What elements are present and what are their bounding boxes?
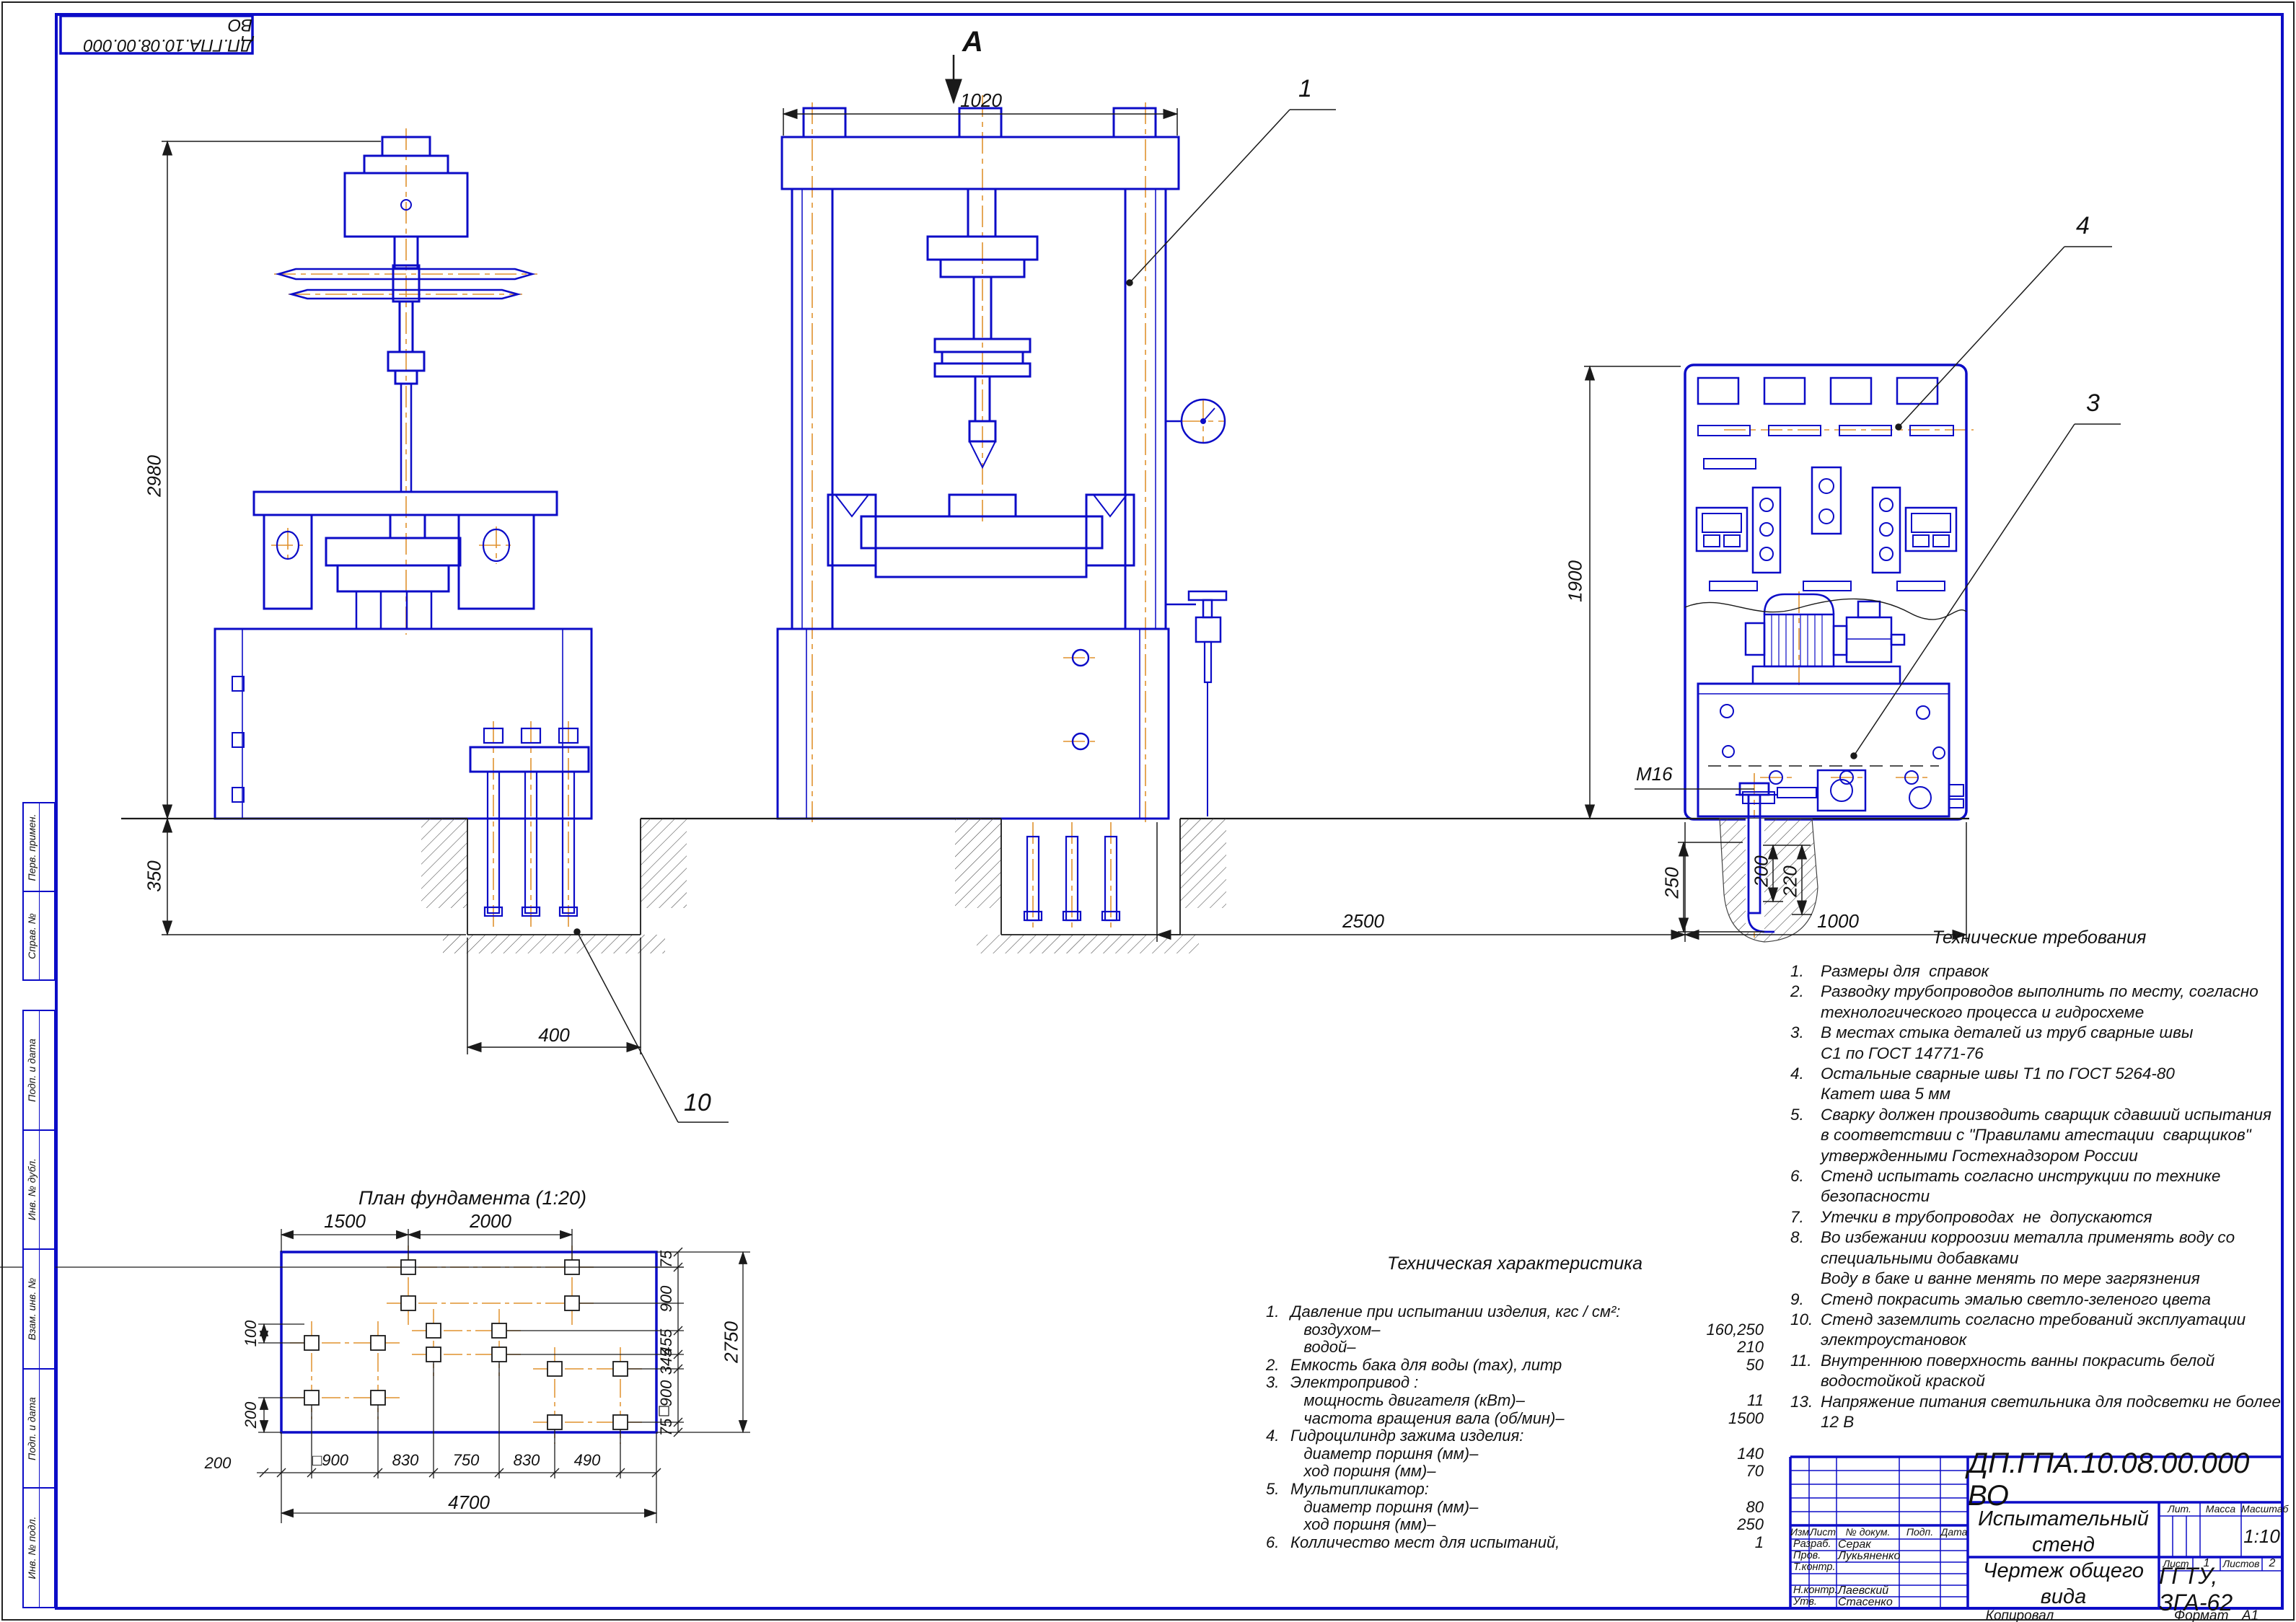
req-line-number: 2. [1790,982,1821,1002]
char-row-label: диаметр поршня (мм)– [1290,1445,1684,1463]
plan-dim-1500: 1500 [324,1210,366,1233]
char-row-value: 50 [1684,1357,1764,1375]
req-line-number: 8. [1790,1227,1821,1248]
tech-requirement-line: 13. Напряжение питания светильника для п… [1790,1392,2288,1412]
plan-dim-r900b: 900 [657,1380,676,1407]
char-row-value: 140 [1684,1445,1764,1463]
tech-requirement-line: водостойкой краской [1790,1371,2288,1391]
req-line-text: С1 по ГОСТ 14771-76 [1821,1044,2288,1064]
tech-requirement-line: 5. Сварку должен производить сварщик сда… [1790,1105,2288,1125]
margin-cell: Инв. № подл. [22,1487,56,1608]
tech-characteristic-row: 4. Гидроцилиндр зажима изделия: [1266,1427,1764,1445]
char-row-number [1266,1463,1290,1481]
req-line-text: Сварку должен производить сварщик сдавши… [1821,1105,2288,1125]
req-line-text: Размеры для справок [1821,961,2288,982]
plan-dim-b200: 200 [205,1454,232,1473]
req-line-number: 13. [1790,1392,1821,1412]
tech-requirement-line: технологического процесса и гидросхеме [1790,1002,2288,1023]
title-block-row: Пров. Лукьяненко [1790,1551,1968,1562]
row-role: Разраб. [1790,1539,1838,1551]
char-row-number [1266,1321,1290,1339]
plan-dim-l200: 200 [242,1402,260,1429]
req-line-number: 11. [1790,1351,1821,1371]
row-name: Стасенко [1838,1597,1893,1608]
drawing-name-line2: Чертеж общего вида [1968,1558,2159,1610]
tech-requirement-line: 6. Стенд испытать согласно инструкции по… [1790,1166,2288,1186]
req-line-text: Катет шва 5 мм [1821,1084,2288,1104]
tech-characteristics-title: Техническая характеристика [1266,1253,1764,1274]
dim-anchor-thread: M16 [1636,763,1673,785]
char-row-label: Электропривод : [1290,1374,1684,1392]
char-row-label: Мультипликатор: [1290,1481,1684,1499]
footer-format-label: Формат [2174,1608,2228,1622]
margin-cell-divider [39,1011,40,1129]
tech-requirement-line: 3. В местах стыка деталей из труб сварны… [1790,1023,2288,1043]
title-block-doc-number: ДП.ГПА.10.08.00.000 ВО [1968,1457,2282,1502]
tech-requirement-line: Воду в баке и ванне менять по мере загря… [1790,1269,2288,1289]
tech-characteristic-row: 1. Давление при испытании изделия, кгс /… [1266,1303,1764,1321]
plan-dim-l100: 100 [242,1321,260,1347]
margin-cell: Подп. и дата [22,1368,56,1489]
char-row-label: Гидроцилиндр зажима изделия: [1290,1427,1684,1445]
req-line-number [1790,1248,1821,1269]
req-line-number [1790,1002,1821,1023]
margin-cell-divider [39,803,40,891]
req-line-text: Внутреннюю поверхность ванны покрасить б… [1821,1351,2288,1371]
char-row-number [1266,1445,1290,1463]
char-row-number: 5. [1266,1481,1290,1499]
col-sign: Подп. [1899,1525,1940,1539]
tech-characteristic-row: водой– 210 [1266,1339,1764,1357]
col-list: Лист [1809,1525,1837,1539]
req-line-text: Утечки в трубопроводах не допускаются [1821,1207,2288,1227]
drawing-name-line1: Испытательный стенд [1968,1506,2159,1558]
tech-characteristic-row: воздухом– 160,250 [1266,1321,1764,1339]
scale-label: Масштаб [2241,1502,2282,1516]
req-line-number: 6. [1790,1166,1821,1186]
margin-cell: Подп. и дата [22,1010,56,1131]
tech-requirement-line: 4. Остальные сварные швы Т1 по ГОСТ 5264… [1790,1064,2288,1084]
tech-characteristic-row: частота вращения вала (об/мин)– 1500 [1266,1410,1764,1428]
title-block-drawing-name: Испытательный стенд Чертеж общего вида [1968,1506,2159,1610]
foundation-plan-title: План фундамента (1:20) [359,1187,586,1209]
req-line-number [1790,1371,1821,1391]
margin-cell: Взам. инв. № [22,1248,56,1370]
char-row-label: Колличество мест для испытаний, [1290,1534,1684,1552]
margin-cell: Инв. № дубл. [22,1129,56,1251]
margin-cell-label: Перв. примен. [26,814,38,881]
dim-pit-width: 400 [538,1024,569,1046]
tech-characteristic-row: мощность двигателя (кВт)– 11 [1266,1392,1764,1410]
margin-cell-divider [39,1489,40,1607]
char-row-value [1684,1303,1764,1321]
plan-centerlines [290,1246,642,1444]
tech-characteristic-row: 3. Электропривод : [1266,1374,1764,1392]
callout-foundation-pit: 10 [684,1089,711,1117]
char-row-label: Емкость бака для воды (max), литр [1290,1357,1684,1375]
margin-column-group1: Перв. примен. Справ. № [22,802,56,981]
char-row-value: 250 [1684,1516,1764,1534]
tech-characteristics: Техническая характеристика 1. Давление п… [1266,1253,1764,1551]
col-date: Дата [1940,1525,1968,1539]
tech-requirement-line: 12 В [1790,1412,2288,1432]
tech-requirement-line: 11. Внутреннюю поверхность ванны покраси… [1790,1351,2288,1371]
tech-requirement-line: утвержденными Гостехнадзором России [1790,1146,2288,1166]
plan-dim-bottom-total: 4700 [448,1491,490,1514]
row-role: Пров. [1790,1551,1838,1562]
dim-press-to-unit: 2500 [1342,910,1384,933]
char-row-label: диаметр поршня (мм)– [1290,1499,1684,1517]
req-line-number [1790,1146,1821,1166]
row-name: Лаевский [1838,1585,1888,1597]
title-block-row [1790,1574,1968,1585]
req-line-text: Остальные сварные швы Т1 по ГОСТ 5264-80 [1821,1064,2288,1084]
tech-characteristic-row: диаметр поршня (мм)– 140 [1266,1445,1764,1463]
char-row-label: Давление при испытании изделия, кгс / см… [1290,1303,1684,1321]
dim-panel-height: 1900 [1565,560,1587,602]
req-line-number [1790,1125,1821,1145]
margin-cell-label: Инв. № подл. [26,1517,38,1579]
char-row-value: 1 [1684,1534,1764,1552]
tech-characteristic-row: ход поршня (мм)– 70 [1266,1463,1764,1481]
char-row-value [1684,1374,1764,1392]
char-row-value: 80 [1684,1499,1764,1517]
req-line-number: 4. [1790,1064,1821,1084]
callout-pump-unit: 3 [2086,389,2100,418]
char-row-number: 1. [1266,1303,1290,1321]
plan-dim-b830b: 830 [514,1451,540,1470]
tech-requirement-line: 8. Во избежании корроозии металла примен… [1790,1227,2288,1248]
dim-foundation-depth: 350 [144,860,166,891]
plan-dim-r345: 345 [657,1349,676,1375]
dim-anchor-len: 220 [1780,865,1802,896]
title-block-organization: ГГТУ, ЗГА-62 [2159,1571,2282,1608]
drawing-sheet: ДП.ГПА.10.08.00.000 ВО Перв. примен. Спр… [0,0,2296,1622]
section-label-a: А [962,26,983,58]
centerlines [271,95,1974,1267]
req-line-text: безопасности [1821,1186,2288,1207]
char-row-number: 3. [1266,1374,1290,1392]
margin-cell-label: Подп. и дата [26,1039,38,1102]
tech-requirement-line: 1. Размеры для справок [1790,961,2288,982]
req-line-number: 3. [1790,1023,1821,1043]
char-row-label: водой– [1290,1339,1684,1357]
ground-and-sections [121,599,1969,953]
tech-characteristic-row: диаметр поршня (мм)– 80 [1266,1499,1764,1517]
margin-cell-label: Подп. и дата [26,1397,38,1460]
tech-requirement-line: Катет шва 5 мм [1790,1084,2288,1104]
tech-requirement-line: специальными добавками [1790,1248,2288,1269]
char-row-number [1266,1392,1290,1410]
req-line-number: 7. [1790,1207,1821,1227]
plan-dim-r75b: 75 [657,1419,676,1436]
tech-characteristic-row: ход поршня (мм)– 250 [1266,1516,1764,1534]
row-role: Т.контр. [1790,1562,1838,1574]
margin-cell: Перв. примен. [22,802,56,892]
char-row-value [1684,1427,1764,1445]
tech-requirement-line: электроустановок [1790,1330,2288,1350]
row-name: Серак [1838,1539,1871,1551]
control-panel [1685,365,1966,819]
tech-requirement-line: в соответствии с "Правилами атестации св… [1790,1125,2288,1145]
plan-dim-right-total: 2750 [721,1321,743,1363]
press-front-view [778,108,1226,920]
char-row-number [1266,1339,1290,1357]
char-row-value: 11 [1684,1392,1764,1410]
char-row-label: ход поршня (мм)– [1290,1516,1684,1534]
mass-label: Масса [2200,1502,2241,1516]
req-line-number: 10. [1790,1310,1821,1330]
req-line-text: водостойкой краской [1821,1371,2288,1391]
plan-dim-r900a: 900 [657,1286,676,1313]
title-block-lit-mass-scale: Лит. Масса Масштаб [2159,1502,2282,1516]
tech-requirement-line: 10. Стенд заземлить согласно требований … [1790,1310,2288,1330]
char-row-number [1266,1516,1290,1534]
char-row-label: мощность двигателя (кВт)– [1290,1392,1684,1410]
title-block-row: Утв. Стасенко [1790,1597,1968,1608]
tech-requirement-line: 7. Утечки в трубопроводах не допускаются [1790,1207,2288,1227]
margin-cell-divider [39,892,40,979]
dim-anchor-embed: 200 [1751,855,1773,886]
req-line-text: электроустановок [1821,1330,2288,1350]
tech-requirement-line: С1 по ГОСТ 14771-76 [1790,1044,2288,1064]
plan-dim-b750: 750 [453,1451,480,1470]
req-line-text: В местах стыка деталей из труб сварные ш… [1821,1023,2288,1043]
plan-dim-r75a: 75 [657,1251,676,1268]
req-line-text: специальными добавками [1821,1248,2288,1269]
tech-characteristic-row: 2. Емкость бака для воды (max), литр 50 [1266,1357,1764,1375]
char-row-number [1266,1499,1290,1517]
char-row-value [1684,1481,1764,1499]
tech-characteristic-row: 5. Мультипликатор: [1266,1481,1764,1499]
dim-press-height: 2980 [144,455,166,497]
char-row-label: частота вращения вала (об/мин)– [1290,1410,1684,1428]
tech-requirement-line: 9. Стенд покрасить эмалью светло-зеленог… [1790,1290,2288,1310]
req-line-text: Стенд покрасить эмалью светло-зеленого ц… [1821,1290,2288,1310]
margin-column-group2: Подп. и дата Инв. № дубл. Взам. инв. № П… [22,1010,56,1608]
margin-cell-label: Взам. инв. № [26,1278,38,1341]
tech-requirements: Технические требования 1. Размеры для сп… [1790,927,2288,1432]
plan-dim-b830a: 830 [392,1451,419,1470]
col-izm: Изм. [1790,1525,1809,1539]
press-side-view [215,137,591,916]
char-row-number [1266,1410,1290,1428]
req-line-text: Во избежании корроозии металла применять… [1821,1227,2288,1248]
margin-cell: Справ. № [22,891,56,981]
req-line-number [1790,1330,1821,1350]
foundation-plan [0,1229,750,1523]
plan-dim-2000: 2000 [470,1210,511,1233]
dim-front-width: 1020 [960,89,1002,112]
req-line-text: Разводку трубопроводов выполнить по мест… [1821,982,2288,1002]
plan-dim-b900: □900 [312,1451,348,1470]
req-line-text: Стенд испытать согласно инструкции по те… [1821,1166,2288,1186]
title-block-scale-value: 1:10 [2241,1516,2282,1557]
req-line-number: 1. [1790,961,1821,982]
char-row-value: 210 [1684,1339,1764,1357]
char-row-value: 1500 [1684,1410,1764,1428]
title-block-row: Т.контр. [1790,1562,1968,1574]
char-row-label: воздухом– [1290,1321,1684,1339]
req-line-number [1790,1084,1821,1104]
callout-press: 1 [1298,75,1312,103]
tech-requirements-list: 1. Размеры для справок 2. Разводку трубо… [1790,961,2288,1432]
req-line-text: Стенд заземлить согласно требований эксп… [1821,1310,2288,1330]
margin-cell-label: Справ. № [26,913,38,959]
req-line-number [1790,1044,1821,1064]
title-block-signature-rows: Разраб. Серак Пров. Лукьяненко Т.контр. … [1790,1539,1968,1608]
req-line-text: 12 В [1821,1412,2288,1432]
char-row-value: 70 [1684,1463,1764,1481]
title-block-row: Разраб. Серак [1790,1539,1968,1551]
margin-cell-label: Инв. № дубл. [26,1158,38,1220]
title-block-row: Н.контр. Лаевский [1790,1585,1968,1597]
col-doc: № докум. [1837,1525,1899,1539]
lit-label: Лит. [2159,1502,2200,1516]
req-line-text: утвержденными Гостехнадзором России [1821,1146,2288,1166]
req-line-number: 9. [1790,1290,1821,1310]
top-stamp-doc-number: ДП.ГПА.10.08.00.000 ВО [61,16,252,53]
dim-anchor-depth: 250 [1661,867,1684,898]
row-name: Лукьяненко [1838,1551,1900,1562]
req-line-text: Воду в баке и ванне менять по мере загря… [1821,1269,2288,1289]
footer-format-value: А1 [2242,1608,2258,1622]
char-row-number: 2. [1266,1357,1290,1375]
title-block-header: Изм. Лист № докум. Подп. Дата [1790,1525,1968,1539]
hydraulic-unit [1698,594,1963,816]
margin-cell-divider [39,1131,40,1249]
req-line-number [1790,1412,1821,1432]
char-row-label: ход поршня (мм)– [1290,1463,1684,1481]
tech-requirement-line: безопасности [1790,1186,2288,1207]
req-line-number: 5. [1790,1105,1821,1125]
char-row-number: 6. [1266,1534,1290,1552]
char-row-value: 160,250 [1684,1321,1764,1339]
req-line-number [1790,1269,1821,1289]
req-line-number [1790,1186,1821,1207]
callout-panel: 4 [2076,212,2090,240]
char-row-number: 4. [1266,1427,1290,1445]
footer-copied-label: Копировал [1986,1608,2054,1622]
plan-dim-b490: 490 [574,1451,601,1470]
req-line-text: в соответствии с "Правилами атестации св… [1821,1125,2288,1145]
tech-requirements-title: Технические требования [1790,927,2288,948]
tech-characteristic-row: 6. Колличество мест для испытаний, 1 [1266,1534,1764,1552]
row-role: Утв. [1790,1597,1838,1608]
req-line-text: Напряжение питания светильника для подсв… [1821,1392,2288,1412]
tech-characteristics-list: 1. Давление при испытании изделия, кгс /… [1266,1303,1764,1551]
row-role [1790,1574,1838,1585]
row-role: Н.контр. [1790,1585,1838,1597]
req-line-text: технологического процесса и гидросхеме [1821,1002,2288,1023]
tech-requirement-line: 2. Разводку трубопроводов выполнить по м… [1790,982,2288,1002]
margin-cell-divider [39,1250,40,1368]
margin-cell-divider [39,1370,40,1488]
